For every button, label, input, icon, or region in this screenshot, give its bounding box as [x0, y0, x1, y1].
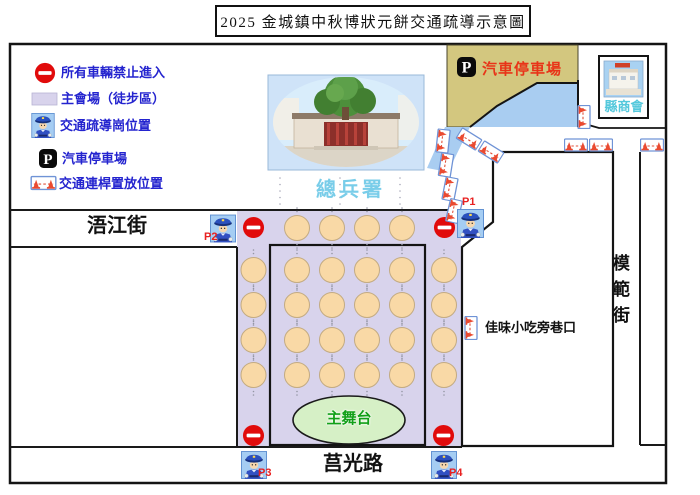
- street-label-wujiang: 浯江街: [87, 216, 147, 237]
- marker-dot: [399, 184, 401, 186]
- marker-dot: [401, 284, 403, 286]
- police-icon: [32, 113, 55, 138]
- no-entry-icon: [243, 425, 264, 446]
- table-circle: [355, 216, 380, 241]
- marker-dot: [443, 324, 445, 326]
- marker-dot: [366, 207, 368, 209]
- marker-dot: [253, 391, 255, 393]
- marker-dot: [331, 284, 333, 286]
- marker-dot: [279, 190, 281, 192]
- marker-dot: [443, 289, 445, 291]
- marker-dot: [331, 253, 333, 255]
- no-entry-icon: [35, 63, 55, 83]
- marker-dot: [253, 324, 255, 326]
- table-circle: [432, 258, 457, 283]
- marker-dot: [443, 249, 445, 251]
- marker-dot: [401, 356, 403, 358]
- table-circle: [432, 363, 457, 388]
- legend-no-entry-label: 所有車輛禁止進入: [61, 66, 165, 80]
- no-entry-icon: [243, 217, 264, 238]
- temple-label: 總兵署: [316, 180, 385, 201]
- post-label-p1: P1: [462, 197, 475, 209]
- post-label-p3: P3: [258, 468, 271, 480]
- marker-dot: [253, 286, 255, 288]
- marker-dot: [366, 289, 368, 291]
- marker-dot: [253, 289, 255, 291]
- marker-dot: [399, 197, 401, 199]
- table-circle: [390, 293, 415, 318]
- marker-dot: [253, 358, 255, 360]
- marker-dot: [279, 203, 281, 205]
- marker-dot: [401, 253, 403, 255]
- marker-dot: [399, 190, 401, 192]
- post-label-p4: P4: [449, 468, 462, 480]
- table-circle: [320, 328, 345, 353]
- marker-dot: [253, 253, 255, 255]
- marker-dot: [331, 323, 333, 325]
- marker-dot: [296, 253, 298, 255]
- marker-dot: [443, 394, 445, 396]
- marker-dot: [331, 286, 333, 288]
- marker-dot: [443, 284, 445, 286]
- marker-dot: [331, 324, 333, 326]
- no-entry-icon: [433, 425, 454, 446]
- marker-dot: [331, 289, 333, 291]
- table-circle: [285, 363, 310, 388]
- marker-dot: [401, 354, 403, 356]
- marker-dot: [296, 247, 298, 249]
- marker-dot: [296, 249, 298, 251]
- marker-dot: [401, 394, 403, 396]
- table-circle: [285, 293, 310, 318]
- marker-dot: [401, 289, 403, 291]
- marker-dot: [253, 356, 255, 358]
- marker-dot: [296, 284, 298, 286]
- marker-dot: [401, 391, 403, 393]
- marker-dot: [401, 321, 403, 323]
- page-title: 2025 金城鎮中秋博狀元餅交通疏導示意圖: [215, 5, 531, 37]
- table-circle: [432, 293, 457, 318]
- marker-dot: [366, 359, 368, 361]
- marker-dot: [366, 358, 368, 360]
- marker-dot: [331, 359, 333, 361]
- table-circle: [390, 363, 415, 388]
- marker-dot: [253, 323, 255, 325]
- street-label-juguang: 莒光路: [323, 454, 383, 475]
- post-label-p2: P2: [204, 232, 217, 244]
- marker-dot: [296, 391, 298, 393]
- marker-dot: [366, 394, 368, 396]
- marker-dot: [331, 244, 333, 246]
- marker-dot: [253, 321, 255, 323]
- legend-police-label: 交通疏導崗位置: [60, 119, 151, 133]
- marker-dot: [401, 244, 403, 246]
- table-circle: [432, 328, 457, 353]
- table-circle: [355, 328, 380, 353]
- marker-dot: [443, 319, 445, 321]
- chamber-label: 縣商會: [599, 100, 649, 114]
- marker-dot: [443, 354, 445, 356]
- marker-dot: [401, 207, 403, 209]
- legend-venue-label: 主會場（徒步區）: [61, 92, 165, 106]
- table-circle: [355, 363, 380, 388]
- table-circle: [285, 328, 310, 353]
- marker-dot: [366, 249, 368, 251]
- marker-dot: [331, 247, 333, 249]
- marker-dot: [401, 286, 403, 288]
- marker-dot: [443, 321, 445, 323]
- marker-dot: [366, 211, 368, 213]
- table-circle: [241, 293, 266, 318]
- marker-dot: [331, 288, 333, 290]
- marker-dot: [331, 394, 333, 396]
- marker-dot: [443, 323, 445, 325]
- marker-dot: [296, 289, 298, 291]
- marker-dot: [401, 247, 403, 249]
- marker-dot: [339, 203, 341, 205]
- marker-dot: [443, 286, 445, 288]
- stage-label: 主舞台: [316, 411, 382, 427]
- parking-icon: P: [457, 57, 476, 77]
- marker-dot: [331, 249, 333, 251]
- table-circle: [320, 216, 345, 241]
- marker-dot: [253, 359, 255, 361]
- table-circle: [390, 328, 415, 353]
- table-circle: [241, 328, 266, 353]
- marker-dot: [366, 354, 368, 356]
- marker-dot: [401, 288, 403, 290]
- table-circle: [320, 293, 345, 318]
- marker-dot: [296, 288, 298, 290]
- marker-dot: [296, 244, 298, 246]
- alley-label: 佳味小吃旁巷口: [485, 321, 576, 335]
- marker-dot: [296, 286, 298, 288]
- marker-dot: [366, 288, 368, 290]
- svg-text:P: P: [462, 60, 472, 77]
- marker-dot: [296, 323, 298, 325]
- venue-swatch: [32, 93, 57, 105]
- marker-dot: [279, 184, 281, 186]
- marker-dot: [279, 177, 281, 179]
- title-text: 2025 金城鎮中秋博狀元餅交通疏導示意圖: [220, 11, 525, 32]
- temple-photo: [268, 74, 424, 170]
- marker-dot: [253, 354, 255, 356]
- table-circle: [390, 258, 415, 283]
- traffic-diagram: P P: [0, 0, 700, 495]
- marker-dot: [331, 321, 333, 323]
- parking-lot-label: 汽車停車場: [482, 62, 562, 78]
- marker-dot: [366, 324, 368, 326]
- marker-dot: [443, 359, 445, 361]
- marker-dot: [331, 319, 333, 321]
- svg-text:P: P: [43, 152, 52, 168]
- marker-dot: [443, 391, 445, 393]
- police-icon: [457, 210, 483, 238]
- marker-dot: [443, 253, 445, 255]
- marker-dot: [331, 391, 333, 393]
- marker-dot: [331, 211, 333, 213]
- table-circle: [241, 258, 266, 283]
- marker-dot: [401, 324, 403, 326]
- marker-dot: [366, 247, 368, 249]
- parking-icon: P: [39, 149, 57, 168]
- marker-dot: [366, 284, 368, 286]
- marker-dot: [296, 356, 298, 358]
- marker-dot: [366, 253, 368, 255]
- marker-dot: [366, 319, 368, 321]
- marker-dot: [296, 319, 298, 321]
- table-circle: [241, 363, 266, 388]
- marker-dot: [253, 284, 255, 286]
- marker-dot: [443, 356, 445, 358]
- marker-dot: [331, 207, 333, 209]
- marker-dot: [401, 211, 403, 213]
- legend-parking-label: 汽車停車場: [62, 152, 127, 166]
- table-circle: [390, 216, 415, 241]
- marker-dot: [253, 288, 255, 290]
- barrier-icon: [31, 177, 56, 190]
- legend-barrier-label: 交通連桿置放位置: [59, 177, 163, 191]
- marker-dot: [296, 211, 298, 213]
- marker-dot: [366, 391, 368, 393]
- marker-dot: [399, 203, 401, 205]
- table-circle: [285, 258, 310, 283]
- marker-dot: [331, 356, 333, 358]
- marker-dot: [279, 197, 281, 199]
- marker-dot: [401, 359, 403, 361]
- marker-dot: [296, 324, 298, 326]
- marker-dot: [399, 177, 401, 179]
- table-circle: [285, 216, 310, 241]
- marker-dot: [331, 358, 333, 360]
- table-circle: [320, 258, 345, 283]
- marker-dot: [296, 358, 298, 360]
- marker-dot: [296, 207, 298, 209]
- marker-dot: [366, 244, 368, 246]
- marker-dot: [401, 319, 403, 321]
- table-circle: [320, 363, 345, 388]
- marker-dot: [253, 319, 255, 321]
- marker-dot: [296, 359, 298, 361]
- marker-dot: [366, 286, 368, 288]
- marker-dot: [253, 249, 255, 251]
- table-circle: [355, 258, 380, 283]
- marker-dot: [296, 321, 298, 323]
- marker-dot: [443, 358, 445, 360]
- marker-dot: [443, 288, 445, 290]
- marker-dot: [401, 358, 403, 360]
- marker-dot: [296, 354, 298, 356]
- street-label-mofan: 模範街: [610, 254, 628, 354]
- marker-dot: [401, 249, 403, 251]
- marker-dot: [366, 323, 368, 325]
- marker-dot: [253, 394, 255, 396]
- marker-dot: [366, 321, 368, 323]
- table-circle: [355, 293, 380, 318]
- marker-dot: [366, 356, 368, 358]
- marker-dot: [401, 323, 403, 325]
- marker-dot: [296, 394, 298, 396]
- marker-dot: [331, 354, 333, 356]
